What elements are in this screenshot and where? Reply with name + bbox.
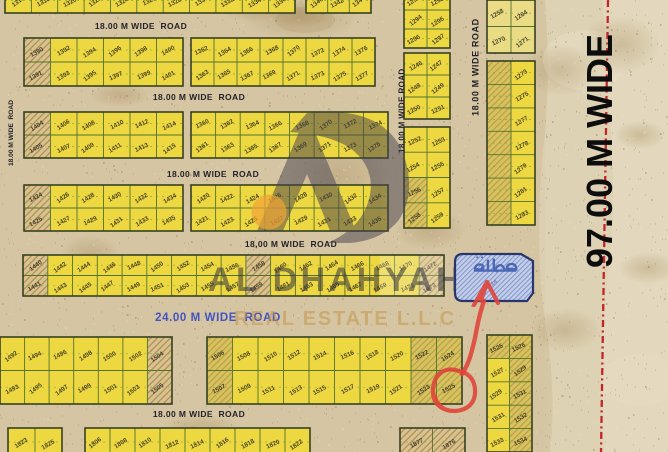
svg-text:AL DHAHYAH: AL DHAHYAH: [208, 261, 464, 299]
svg-text:97.00 M WIDE: 97.00 M WIDE: [579, 34, 620, 268]
svg-text:REAL ESTATE L.L.C: REAL ESTATE L.L.C: [234, 308, 456, 330]
